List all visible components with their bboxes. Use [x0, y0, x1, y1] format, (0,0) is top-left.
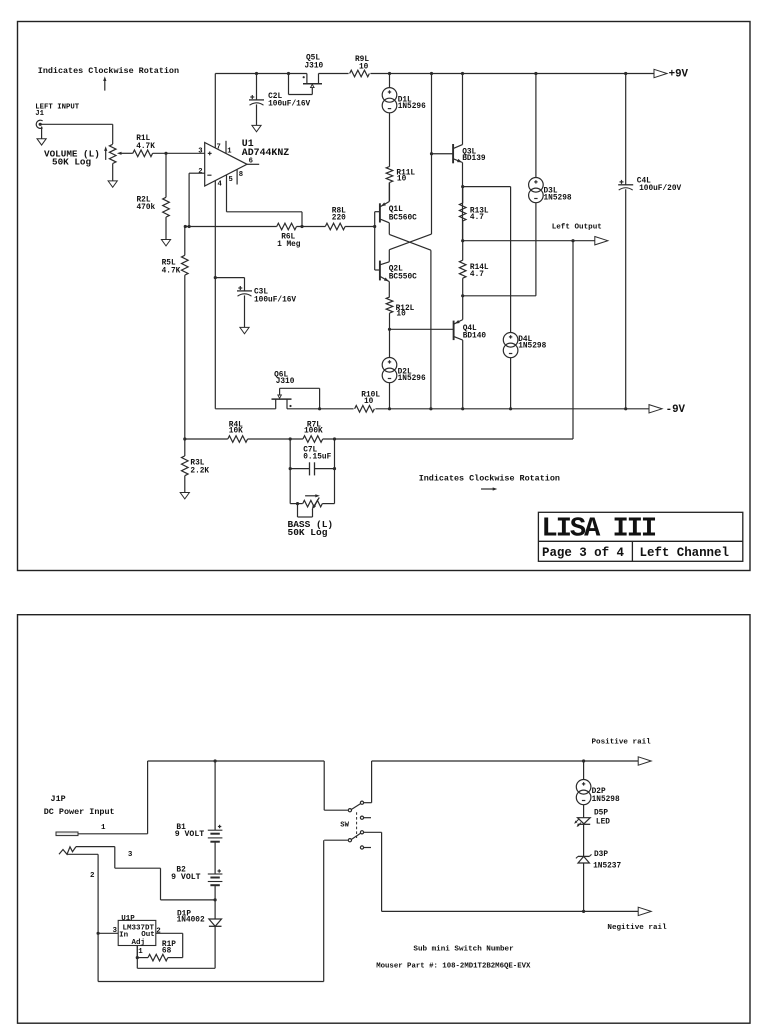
- svg-text:In: In: [119, 931, 129, 939]
- svg-text:1: 1: [227, 147, 232, 155]
- svg-text:D2P: D2P: [592, 788, 606, 796]
- svg-text:Indicates Clockwise Rotation: Indicates Clockwise Rotation: [38, 66, 179, 76]
- svg-text:R3L: R3L: [190, 459, 204, 467]
- svg-text:Q2L: Q2L: [389, 266, 403, 274]
- svg-text:U1P: U1P: [121, 915, 135, 923]
- svg-text:+9V: +9V: [669, 69, 689, 81]
- svg-text:R5L: R5L: [162, 259, 176, 267]
- svg-text:100uF/16V: 100uF/16V: [254, 296, 296, 304]
- svg-text:AD744KNZ: AD744KNZ: [242, 147, 289, 158]
- svg-text:4.7: 4.7: [470, 214, 484, 222]
- svg-text:-9V: -9V: [666, 404, 686, 416]
- svg-text:9 VOLT: 9 VOLT: [171, 873, 201, 882]
- svg-text:7: 7: [217, 143, 221, 151]
- svg-text:2: 2: [156, 927, 161, 935]
- svg-text:Left Channel: Left Channel: [640, 546, 729, 560]
- svg-text:Adj: Adj: [132, 939, 146, 947]
- svg-text:100uF/20V: 100uF/20V: [639, 185, 681, 193]
- svg-text:50K Log: 50K Log: [288, 527, 328, 538]
- svg-text:1N5298: 1N5298: [544, 195, 572, 203]
- svg-text:Sub mini Switch Number: Sub mini Switch Number: [413, 945, 514, 953]
- svg-text:J1: J1: [35, 110, 44, 118]
- svg-text:1N5298: 1N5298: [592, 796, 620, 804]
- svg-text:2: 2: [90, 872, 95, 880]
- svg-text:DC Power Input: DC Power Input: [44, 807, 115, 817]
- svg-text:1N5296: 1N5296: [398, 103, 426, 111]
- svg-text:4.7: 4.7: [470, 271, 484, 279]
- svg-text:Positive rail: Positive rail: [592, 739, 652, 747]
- svg-text:LISA III: LISA III: [542, 515, 656, 545]
- svg-text:100uF/16V: 100uF/16V: [268, 101, 310, 109]
- svg-text:BD140: BD140: [463, 332, 487, 340]
- svg-text:0.15uF: 0.15uF: [303, 453, 331, 461]
- svg-text:2.2K: 2.2K: [190, 468, 209, 476]
- svg-text:10K: 10K: [229, 427, 243, 435]
- svg-text:1N5298: 1N5298: [518, 342, 546, 350]
- svg-text:10: 10: [396, 311, 406, 319]
- svg-text:Indicates Clockwise Rotation: Indicates Clockwise Rotation: [419, 473, 560, 483]
- svg-text:Left Output: Left Output: [552, 224, 602, 232]
- svg-text:3: 3: [128, 851, 133, 859]
- svg-text:Negitive rail: Negitive rail: [607, 924, 667, 932]
- svg-text:R1L: R1L: [136, 135, 150, 143]
- svg-text:1 Meg: 1 Meg: [277, 241, 301, 249]
- svg-text:220: 220: [332, 215, 346, 223]
- svg-text:3: 3: [198, 148, 202, 156]
- svg-text:10: 10: [359, 64, 369, 72]
- svg-text:4: 4: [218, 180, 223, 188]
- svg-text:4.7K: 4.7K: [136, 143, 155, 151]
- svg-text:2: 2: [198, 168, 202, 176]
- svg-text:1: 1: [138, 948, 143, 956]
- svg-text:1: 1: [101, 824, 106, 832]
- svg-text:J310: J310: [305, 62, 324, 70]
- svg-text:1N5237: 1N5237: [593, 862, 621, 870]
- svg-text:50K Log: 50K Log: [52, 157, 91, 168]
- svg-text:1N5296: 1N5296: [398, 375, 426, 383]
- svg-text:J1P: J1P: [51, 794, 66, 804]
- svg-text:10: 10: [364, 398, 374, 406]
- svg-text:100K: 100K: [304, 427, 323, 435]
- svg-text:J310: J310: [276, 378, 295, 386]
- svg-text:1N4002: 1N4002: [177, 917, 205, 925]
- svg-text:9 VOLT: 9 VOLT: [175, 830, 205, 839]
- svg-text:D3P: D3P: [594, 851, 608, 859]
- svg-text:Q1L: Q1L: [389, 206, 403, 214]
- svg-text:C3L: C3L: [254, 288, 268, 296]
- svg-text:10: 10: [397, 176, 407, 184]
- svg-text:470k: 470k: [137, 204, 156, 212]
- svg-text:4.7K: 4.7K: [162, 268, 181, 276]
- svg-text:BC560C: BC560C: [389, 215, 417, 223]
- svg-text:Q5L: Q5L: [306, 55, 320, 63]
- svg-text:Page 3 of 4: Page 3 of 4: [542, 546, 625, 560]
- svg-text:BC550C: BC550C: [389, 273, 417, 281]
- svg-text:BD139: BD139: [462, 155, 486, 163]
- svg-text:5: 5: [229, 176, 233, 184]
- svg-text:8: 8: [239, 171, 243, 179]
- svg-text:SW: SW: [340, 822, 349, 830]
- svg-text:LED: LED: [596, 819, 610, 827]
- svg-text:Mouser Part #: 108-2MD1T2B2M6Q: Mouser Part #: 108-2MD1T2B2M6QE-EVX: [376, 963, 531, 971]
- svg-text:D5P: D5P: [594, 810, 608, 818]
